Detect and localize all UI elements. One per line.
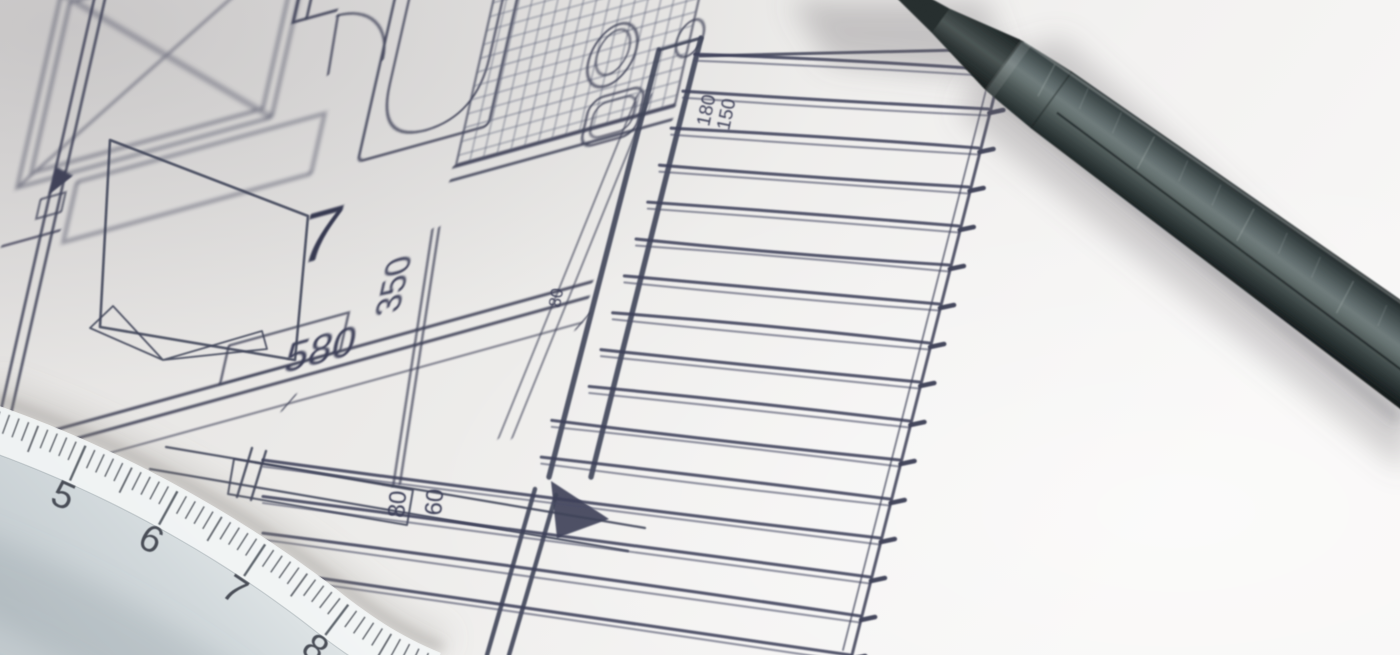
photo-stage: 7 580 350 80 60 80	[0, 0, 1400, 655]
photo-grain-overlay	[0, 0, 1400, 655]
floor-plan-photo: 7 580 350 80 60 80	[0, 0, 1400, 655]
